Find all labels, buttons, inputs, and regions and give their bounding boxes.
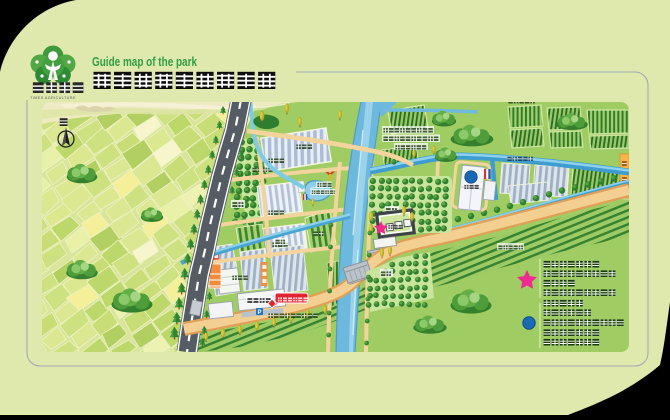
svg-text:P: P: [257, 310, 261, 316]
svg-text:TIMES AGRICULTURE: TIMES AGRICULTURE: [30, 96, 76, 100]
svg-text:Guide map of the park: Guide map of the park: [92, 54, 198, 69]
